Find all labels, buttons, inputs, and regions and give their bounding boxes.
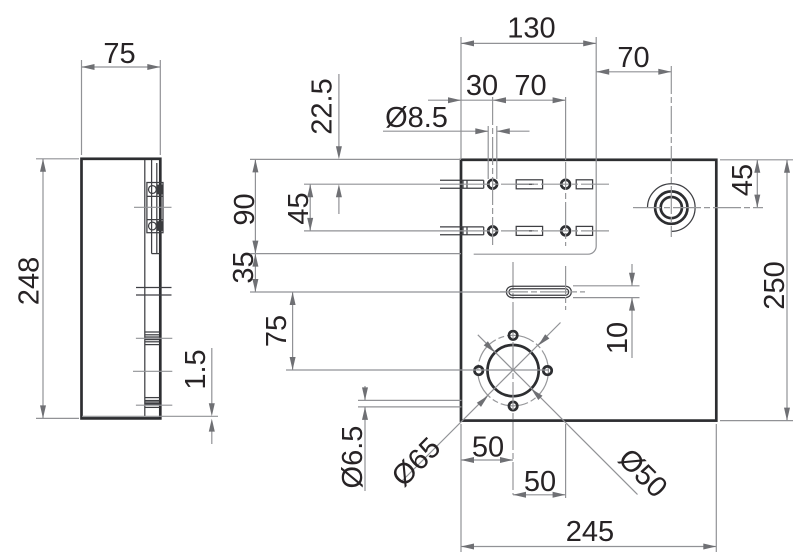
svg-text:22.5: 22.5 [307, 78, 339, 134]
svg-text:45: 45 [283, 192, 315, 224]
svg-text:1.5: 1.5 [180, 349, 212, 389]
svg-text:45: 45 [727, 164, 759, 196]
svg-text:10: 10 [602, 322, 634, 354]
svg-text:75: 75 [103, 38, 135, 70]
svg-text:Ø8.5: Ø8.5 [385, 102, 448, 134]
svg-text:Ø6.5: Ø6.5 [337, 426, 369, 489]
svg-text:130: 130 [507, 13, 555, 45]
svg-text:50: 50 [472, 432, 504, 464]
svg-text:90: 90 [229, 193, 261, 225]
svg-text:248: 248 [14, 257, 46, 305]
svg-text:70: 70 [617, 42, 649, 74]
svg-text:30: 30 [466, 70, 498, 102]
svg-text:35: 35 [228, 251, 260, 283]
svg-text:245: 245 [566, 516, 614, 548]
svg-text:75: 75 [261, 315, 293, 347]
svg-text:50: 50 [524, 466, 556, 498]
svg-text:250: 250 [759, 261, 791, 309]
svg-text:70: 70 [514, 70, 546, 102]
